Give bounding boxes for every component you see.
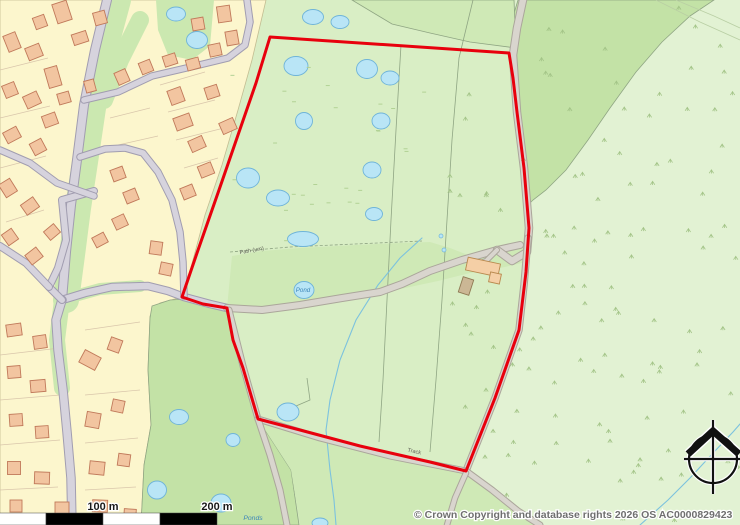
building xyxy=(35,426,49,439)
pond xyxy=(372,113,390,129)
building xyxy=(85,411,101,428)
building xyxy=(159,262,173,276)
building xyxy=(149,241,163,256)
copyright: © Crown Copyright and database rights 20… xyxy=(414,509,733,521)
pond xyxy=(288,232,319,247)
map-viewport[interactable]: Path (um)PondPondsTrack100 m200 m© Crown… xyxy=(0,0,740,525)
building xyxy=(111,399,125,413)
copyright-text: © Crown Copyright and database rights 20… xyxy=(414,509,733,521)
scale-label: 100 m xyxy=(87,501,118,513)
pond xyxy=(284,57,308,76)
pond xyxy=(267,190,290,206)
building xyxy=(55,502,69,514)
scale-label: 200 m xyxy=(201,501,232,513)
map-label: Ponds xyxy=(243,515,263,522)
building xyxy=(33,335,48,350)
pond xyxy=(357,60,378,79)
building xyxy=(117,453,131,467)
building xyxy=(8,462,21,475)
pond xyxy=(381,71,399,85)
pond xyxy=(296,113,313,130)
building xyxy=(7,365,21,378)
scale-bar-segment xyxy=(160,513,217,525)
map-svg[interactable]: Path (um)PondPondsTrack100 m200 m© Crown… xyxy=(0,0,740,525)
pond xyxy=(187,32,208,49)
pond xyxy=(277,403,299,421)
building xyxy=(89,461,105,475)
pond xyxy=(167,7,186,21)
pond xyxy=(148,481,167,499)
building xyxy=(208,43,222,57)
scale-bar-segment xyxy=(46,513,103,525)
pond xyxy=(226,434,240,447)
building xyxy=(34,472,49,485)
building xyxy=(10,500,22,512)
pond xyxy=(170,410,189,425)
building xyxy=(225,30,239,46)
pond xyxy=(331,16,349,29)
building xyxy=(30,379,46,392)
scale-bar-segment xyxy=(0,513,46,525)
building xyxy=(191,17,205,31)
pond xyxy=(363,162,381,178)
building xyxy=(9,414,23,427)
building xyxy=(489,272,502,284)
pond xyxy=(237,168,260,188)
pond xyxy=(366,208,383,221)
pond xyxy=(303,10,324,25)
scale-bar-segment xyxy=(103,513,160,525)
map-label: Pond xyxy=(296,287,311,294)
building xyxy=(216,5,231,23)
building xyxy=(6,323,23,337)
pond xyxy=(312,518,328,525)
